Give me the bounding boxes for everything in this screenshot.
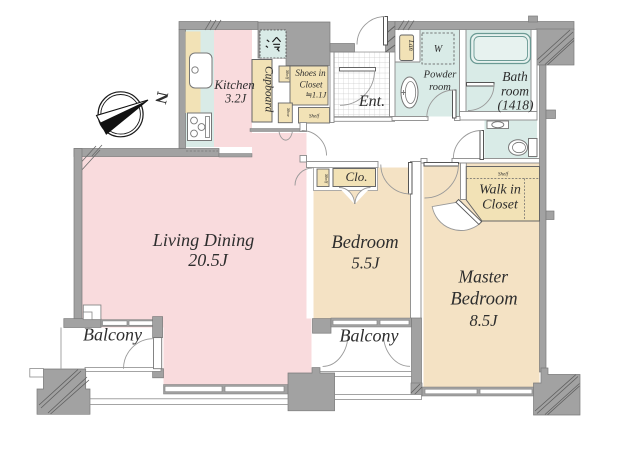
svg-text:Bedroom: Bedroom [450,290,517,310]
svg-text:Shelf: Shelf [285,70,290,80]
svg-text:Balcony: Balcony [340,326,399,346]
svg-text:Shelf: Shelf [309,115,320,120]
svg-text:Kitchen: Kitchen [213,77,254,92]
svg-text:Cupboard: Cupboard [263,66,275,112]
svg-text:Lan: Lan [407,39,415,51]
svg-text:Bath: Bath [502,69,528,84]
svg-text:3.2J: 3.2J [224,92,248,106]
svg-text:Bedroom: Bedroom [331,233,398,253]
svg-text:5.5J: 5.5J [352,254,381,273]
svg-text:Powder: Powder [423,70,458,81]
svg-text:Shelf: Shelf [324,174,329,184]
svg-text:Shelf: Shelf [498,173,509,178]
svg-text:Walk in: Walk in [479,183,521,198]
svg-text:Closet: Closet [482,198,519,213]
svg-text:room: room [429,82,451,93]
svg-text:Master: Master [458,267,509,287]
svg-text:Clo.: Clo. [345,169,367,184]
svg-text:Shoe: Shoe [286,108,291,117]
svg-text:Living Dining: Living Dining [152,230,255,250]
svg-text:room: room [501,84,529,99]
svg-text:Balcony: Balcony [83,325,142,345]
svg-text:Shoes in: Shoes in [295,68,326,78]
svg-text:Closet: Closet [299,80,323,90]
svg-text:20.5J: 20.5J [188,250,229,270]
svg-text:(1418): (1418) [498,98,534,113]
svg-text:≒1.1J: ≒1.1J [305,90,328,100]
svg-text:8.5J: 8.5J [470,311,499,330]
svg-text:Ent.: Ent. [358,93,385,110]
